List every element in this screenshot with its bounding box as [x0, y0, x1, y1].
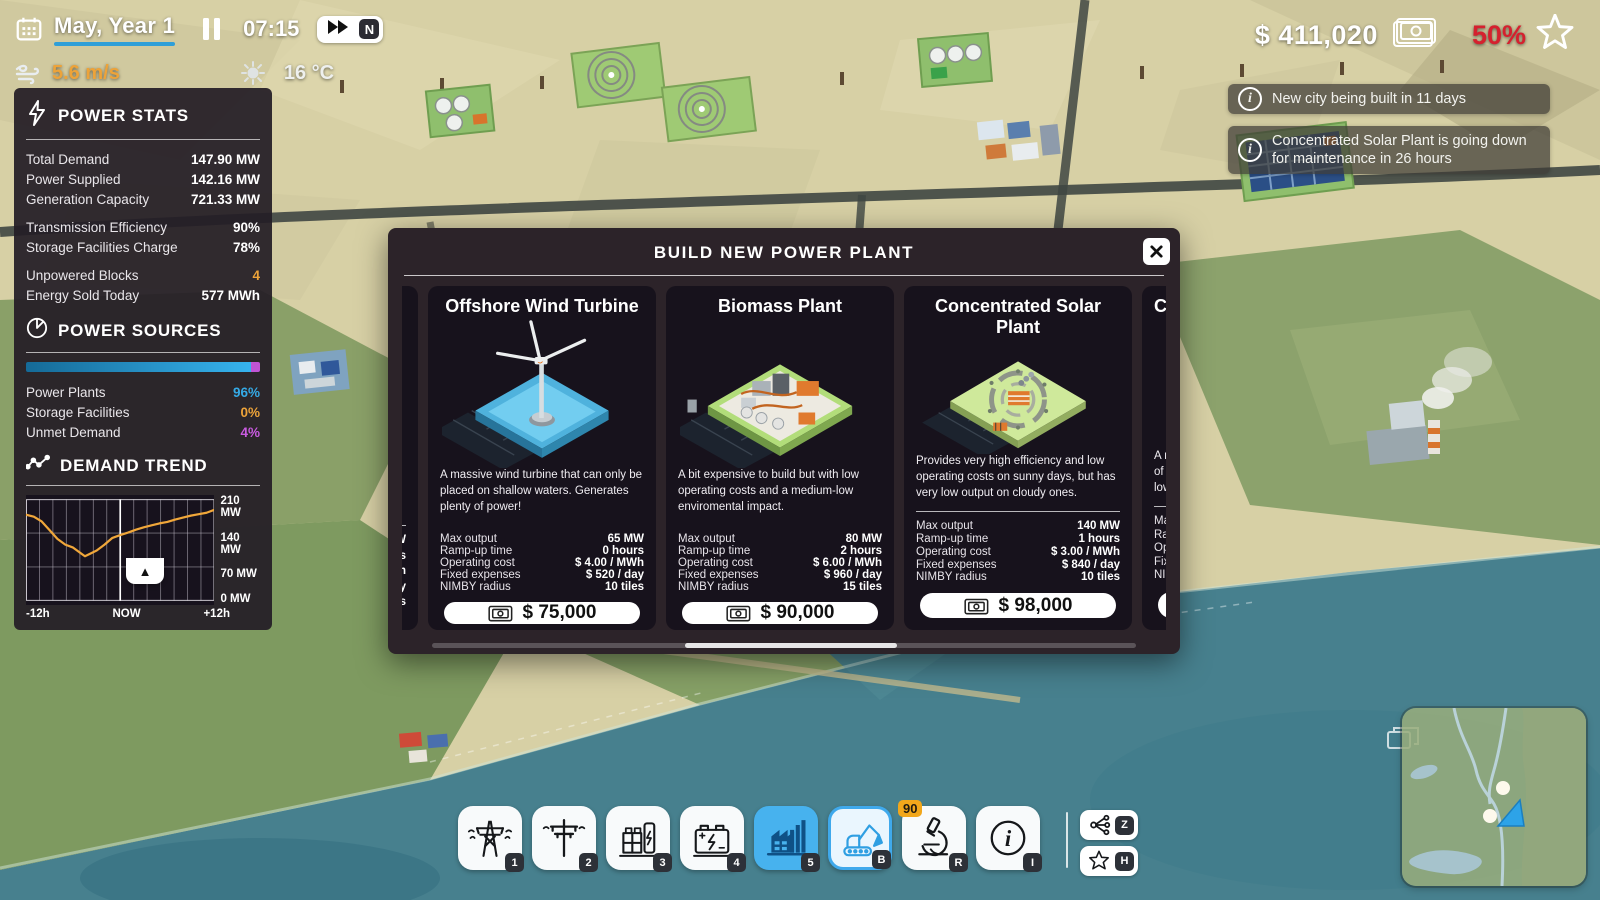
x-tick: +12h [203, 608, 230, 620]
banknote-icon [726, 604, 752, 622]
offshore-wind-turbine-art [440, 320, 644, 468]
stat-value: 65 MW [608, 533, 644, 545]
stat-row: Power Supplied 142.16 MW [26, 169, 260, 189]
divider [1154, 506, 1166, 507]
plant-card-partial-right[interactable]: Co A more of the low op Max ou Ramp- Ope… [1142, 286, 1166, 630]
hotkey-badge: B [872, 850, 891, 869]
notification[interactable]: i Concentrated Solar Plant is going down… [1228, 126, 1550, 174]
y-tick: 140 MW [220, 532, 260, 556]
stat-fragment: y [402, 581, 406, 597]
stat-row: Transmission Efficiency 90% [26, 217, 260, 237]
stat-row: Total Demand 147.90 MW [26, 149, 260, 169]
stat-fragment: W [402, 534, 406, 550]
toolbar-substation-button[interactable]: 3 [606, 806, 670, 870]
minimap[interactable] [1402, 708, 1586, 886]
stat-value: 0 hours [602, 545, 644, 557]
stat-label: NIMBY radius [440, 581, 511, 593]
divider [404, 275, 1164, 276]
toolbar-power-pole-button[interactable]: 2 [532, 806, 596, 870]
plant-description: Provides very high efficiency and low op… [916, 454, 1120, 502]
power-sources-header: POWER SOURCES [26, 317, 260, 344]
unmet-bar-segment [251, 362, 260, 372]
stat-value: 4% [240, 425, 260, 440]
buy-button[interactable]: $ 75,000 [444, 602, 640, 624]
price-label: $ 75,000 [523, 602, 597, 624]
stat-label: Ramp-up time [916, 533, 988, 546]
plants-bar-segment [26, 362, 251, 372]
buy-button[interactable]: $ 90,000 [682, 602, 878, 624]
svg-text:i: i [1005, 826, 1012, 851]
x-tick: -12h [26, 608, 50, 620]
stat-value: 721.33 MW [191, 192, 260, 207]
stat-row: Energy Sold Today 577 MWh [26, 285, 260, 305]
y-tick: 70 MW [220, 568, 260, 580]
favorites-button[interactable]: H [1080, 846, 1138, 876]
stat-value: 10 tiles [1081, 571, 1120, 584]
scrollbar-thumb[interactable] [685, 643, 896, 648]
line-chart-icon [26, 454, 50, 477]
hotkey-badge: H [1115, 852, 1134, 871]
stat-value: $ 840 / day [1062, 559, 1120, 572]
stat-label: Unpowered Blocks [26, 268, 139, 283]
divider [402, 525, 406, 526]
buy-button[interactable] [1158, 592, 1166, 618]
stat-value: $ 4.00 / MWh [575, 557, 644, 569]
stat-value: 10 tiles [605, 581, 644, 593]
lightning-icon [26, 100, 48, 131]
toolbar-power-plant-button[interactable]: 5 [754, 806, 818, 870]
wind-icon [14, 61, 42, 85]
banknote-icon [964, 597, 990, 615]
stat-value: $ 3.00 / MWh [1051, 546, 1120, 559]
stat-label: Fixed e [1154, 556, 1166, 570]
network-icon [1088, 814, 1112, 836]
stat-label: Power Plants [26, 385, 106, 400]
plant-title: Offshore Wind Turbine [440, 296, 644, 320]
stat-label: Power Supplied [26, 172, 121, 187]
divider [916, 511, 1120, 512]
stat-label: Max output [678, 533, 735, 545]
stat-label: Storage Facilities Charge [26, 240, 178, 255]
stat-value: $ 6.00 / MWh [813, 557, 882, 569]
stat-label: Operating cost [916, 546, 991, 559]
stat-value: 90% [233, 220, 260, 235]
money-label: $ 411,020 [1255, 20, 1378, 51]
stat-value: 1 hours [1078, 533, 1120, 546]
plant-description: A more of the low op [1154, 449, 1166, 497]
money-icon [1392, 18, 1436, 53]
y-axis-labels: 210 MW 140 MW 70 MW 0 MW [214, 495, 260, 605]
divider [26, 139, 260, 140]
demand-trend-header: DEMAND TREND [26, 454, 260, 477]
plant-cards-scroller[interactable]: W s h y s Offshore Wind Turbine [402, 286, 1166, 632]
info-icon: i [1238, 138, 1262, 162]
stat-label: Max output [916, 520, 973, 533]
toolbar-info-button[interactable]: i I [976, 806, 1040, 870]
stat-label: Storage Facilities [26, 405, 130, 420]
network-overlay-button[interactable]: Z [1080, 810, 1138, 840]
stat-label: Fixed expenses [440, 569, 521, 581]
build-power-plant-modal: BUILD NEW POWER PLANT W s h y s Offshore… [388, 228, 1180, 654]
stat-label: Max output [440, 533, 497, 545]
stat-fragment: s [402, 550, 406, 566]
plant-card-concentrated-solar[interactable]: Concentrated Solar Plant [904, 286, 1132, 630]
stat-row: Unmet Demand 4% [26, 422, 260, 442]
notification[interactable]: i New city being built in 11 days [1228, 84, 1550, 114]
stat-value: $ 520 / day [586, 569, 644, 581]
stat-label: Operating cost [440, 557, 515, 569]
stat-label: Fixed expenses [678, 569, 759, 581]
pie-chart-icon [26, 317, 48, 344]
demand-trend-plot [26, 495, 214, 605]
modal-title: BUILD NEW POWER PLANT [402, 243, 1166, 263]
plant-title: Concentrated Solar Plant [916, 296, 1120, 330]
power-overview-panel: POWER STATS Total Demand 147.90 MW Power… [14, 88, 272, 630]
stat-value: 96% [233, 385, 260, 400]
stat-row: Unpowered Blocks 4 [26, 265, 260, 285]
info-icon: i [1238, 87, 1262, 111]
fast-forward-icon[interactable] [326, 19, 352, 40]
stat-value: 142.16 MW [191, 172, 260, 187]
date-label: May, Year 1 [54, 13, 175, 39]
calendar-icon [14, 14, 44, 44]
buy-button[interactable]: $ 98,000 [920, 593, 1116, 618]
stat-label: Operating cost [678, 557, 753, 569]
stat-label: Fixed expenses [916, 559, 997, 572]
notification-text: New city being built in 11 days [1272, 90, 1466, 108]
plant-card-partial-left[interactable]: W s h y s [402, 286, 418, 630]
stat-label: Max ou [1154, 515, 1166, 529]
divider [26, 485, 260, 486]
stat-value: 80 MW [846, 533, 882, 545]
biomass-plant-art [678, 320, 882, 468]
stat-fragment: h [402, 565, 406, 581]
stat-value: 0% [240, 405, 260, 420]
stat-row: Generation Capacity 721.33 MW [26, 189, 260, 209]
banknote-icon [488, 604, 514, 622]
stat-value: 147.90 MW [191, 152, 260, 167]
stat-fragment: s [402, 596, 406, 612]
y-tick: 0 MW [220, 593, 260, 605]
stat-value: 2 hours [840, 545, 882, 557]
stat-label: Ramp-up time [440, 545, 512, 557]
build-toolbar: 1 2 3 4 [458, 806, 1040, 870]
x-axis-labels: -12h NOW +12h [26, 608, 230, 620]
panel-collapse-button[interactable]: ▲ [126, 558, 164, 584]
toolbar-research-button[interactable]: 90 R [902, 806, 966, 870]
hotkey-badge: Z [1115, 816, 1134, 835]
demand-trend-chart: 210 MW 140 MW 70 MW 0 MW [26, 495, 260, 605]
stat-value: 15 tiles [843, 581, 882, 593]
concentrated-solar-art [916, 330, 1120, 454]
hotkey-badge: 2 [579, 853, 598, 872]
toolbar-transmission-tower-button[interactable]: 1 [458, 806, 522, 870]
plant-title: Co [1154, 296, 1166, 320]
stat-label: Ramp-up time [678, 545, 750, 557]
stat-label: NIMBY radius [678, 581, 749, 593]
stat-label: Unmet Demand [26, 425, 121, 440]
star-icon[interactable] [1536, 14, 1574, 57]
toolbar-divider [1066, 812, 1068, 868]
top-hud: May, Year 1 07:15 N [14, 10, 383, 92]
stat-value: 78% [233, 240, 260, 255]
hotkey-badge: I [1023, 853, 1042, 872]
x-tick: NOW [113, 608, 141, 620]
pause-icon[interactable] [201, 16, 223, 42]
toolbar-excavator-button[interactable]: B [828, 806, 892, 870]
panel-title: POWER SOURCES [58, 321, 221, 341]
stat-row: Storage Facilities Charge 78% [26, 237, 260, 257]
plant-title: Biomass Plant [678, 296, 882, 320]
y-tick: 210 MW [220, 495, 260, 519]
approval-label: 50% [1472, 20, 1526, 51]
speed-controls[interactable]: N [317, 16, 383, 43]
price-label: $ 90,000 [761, 602, 835, 624]
hotkey-badge: 5 [801, 853, 820, 872]
plant-card-offshore-wind[interactable]: Offshore Wind Turbine [428, 286, 656, 630]
plant-description: A massive wind turbine that can only be … [440, 468, 644, 516]
hotkey-badge: 1 [505, 853, 524, 872]
notification-text: Concentrated Solar Plant is going down f… [1272, 132, 1540, 168]
stat-value: 4 [252, 268, 260, 283]
temperature-sun-icon [240, 60, 266, 86]
modal-scrollbar[interactable] [432, 643, 1136, 648]
star-icon [1088, 850, 1110, 872]
divider [26, 352, 260, 353]
stat-label: Ramp- [1154, 529, 1166, 543]
stat-row: Storage Facilities 0% [26, 402, 260, 422]
plant-card-biomass[interactable]: Biomass Plant [666, 286, 894, 630]
stat-value: 140 MW [1077, 520, 1120, 533]
stat-label: Opera [1154, 542, 1166, 556]
month-progress-bar [54, 42, 175, 46]
hotkey-badge: 4 [727, 853, 746, 872]
stat-row: Power Plants 96% [26, 382, 260, 402]
toolbar-battery-button[interactable]: 4 [680, 806, 744, 870]
stat-label: Generation Capacity [26, 192, 149, 207]
price-label: $ 98,000 [999, 595, 1073, 617]
speed-mode-badge[interactable]: N [359, 19, 379, 39]
clock-label: 07:15 [243, 16, 299, 42]
stat-label: NIMBY [1154, 569, 1166, 583]
temperature-label: 16 °C [284, 62, 334, 85]
research-count-badge: 90 [898, 800, 922, 817]
stat-label: Transmission Efficiency [26, 220, 167, 235]
power-sources-bar [26, 362, 260, 372]
wind-speed-label: 5.6 m/s [52, 62, 120, 85]
stat-value: 577 MWh [201, 288, 260, 303]
stat-label: Energy Sold Today [26, 288, 139, 303]
panel-title: DEMAND TREND [60, 456, 207, 476]
close-button[interactable] [1143, 238, 1170, 265]
plant-description: A bit expensive to build but with low op… [678, 468, 882, 516]
stat-value: $ 960 / day [824, 569, 882, 581]
hotkey-badge: 3 [653, 853, 672, 872]
stat-label: Total Demand [26, 152, 109, 167]
hotkey-badge: R [949, 853, 968, 872]
stat-label: NIMBY radius [916, 571, 987, 584]
top-right-hud: $ 411,020 50% [1255, 14, 1574, 57]
power-stats-header: POWER STATS [26, 100, 260, 131]
game-viewport: { "hud": { "date": "May, Year 1", "time"… [0, 0, 1600, 900]
panel-title: POWER STATS [58, 106, 189, 126]
